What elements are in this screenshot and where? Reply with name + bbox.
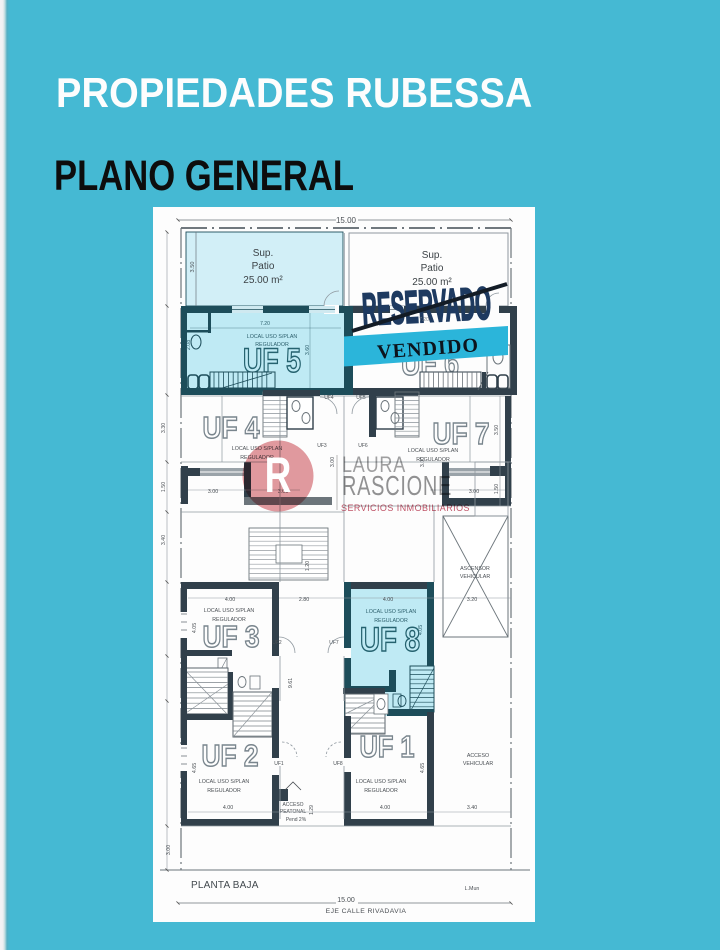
svg-text:RESERVADO: RESERVADO [361,277,493,336]
svg-text:UF 4: UF 4 [203,410,261,445]
svg-text:UF 8: UF 8 [360,621,420,659]
svg-text:Patio: Patio [252,261,275,272]
svg-text:UF1: UF1 [274,761,284,767]
svg-text:4.65: 4.65 [192,763,198,773]
svg-text:UF 2: UF 2 [202,738,259,773]
svg-text:UF2: UF2 [272,640,282,646]
svg-text:3.50: 3.50 [494,425,500,435]
svg-text:4.65: 4.65 [420,763,426,773]
svg-text:1.29: 1.29 [309,805,315,815]
svg-text:UF3: UF3 [317,443,327,449]
svg-text:15.00: 15.00 [337,897,355,904]
svg-text:3.40: 3.40 [467,805,477,811]
svg-text:UF 7: UF 7 [433,416,490,451]
svg-text:25.00 m²: 25.00 m² [243,275,283,286]
svg-text:3.00: 3.00 [208,489,218,495]
svg-text:7.20: 7.20 [419,317,429,323]
svg-text:UF5: UF5 [356,395,366,401]
svg-text:R: R [265,448,292,504]
svg-text:EJE CALLE RIVADAVIA: EJE CALLE RIVADAVIA [326,908,407,915]
svg-text:3.00: 3.00 [469,489,479,495]
svg-text:UF8: UF8 [333,761,343,767]
svg-text:3.00: 3.00 [166,845,172,855]
svg-text:15.00: 15.00 [336,216,357,225]
svg-text:SERVICIOS INMOBILIARIOS: SERVICIOS INMOBILIARIOS [341,503,470,514]
svg-text:Pend 2%: Pend 2% [286,817,307,823]
svg-text:ACCESO: ACCESO [467,753,489,759]
svg-text:LOCAL USO S/PLAN: LOCAL USO S/PLAN [408,448,459,454]
svg-text:PLANTA BAJA: PLANTA BAJA [191,880,259,891]
svg-text:RASCIONE: RASCIONE [342,470,452,501]
svg-text:Sup.: Sup. [253,248,274,259]
svg-text:ACCESO: ACCESO [282,802,303,808]
svg-text:4.05: 4.05 [192,623,198,633]
svg-text:Sup.: Sup. [422,250,443,261]
svg-text:LOCAL USO S/PLAN: LOCAL USO S/PLAN [204,608,255,614]
svg-text:3.60: 3.60 [305,345,311,355]
svg-text:REGULADOR: REGULADOR [364,788,398,794]
svg-text:2.08: 2.08 [186,340,192,350]
svg-text:3.40: 3.40 [161,535,167,545]
svg-text:LOCAL USO S/PLAN: LOCAL USO S/PLAN [247,334,298,340]
svg-text:Patio: Patio [421,263,444,274]
svg-text:1.20: 1.20 [305,561,311,571]
svg-text:1.50: 1.50 [494,484,500,494]
svg-text:LOCAL USO S/PLAN: LOCAL USO S/PLAN [356,779,407,785]
svg-text:7.20: 7.20 [260,321,270,327]
svg-text:4.00: 4.00 [223,805,233,811]
svg-text:LOCAL USO S/PLAN: LOCAL USO S/PLAN [199,779,250,785]
svg-text:L.Mun: L.Mun [465,886,480,892]
svg-text:9.61: 9.61 [288,678,294,688]
svg-text:1.50: 1.50 [161,482,167,492]
svg-text:REGULADOR: REGULADOR [207,788,241,794]
svg-text:3.20: 3.20 [467,597,477,603]
svg-text:4.00: 4.00 [225,597,235,603]
svg-text:LOCAL USO S/PLAN: LOCAL USO S/PLAN [366,609,417,615]
svg-text:ASCENSOR: ASCENSOR [460,566,490,572]
svg-text:VEHICULAR: VEHICULAR [463,761,493,767]
svg-text:3.50: 3.50 [190,262,196,273]
svg-text:4.00: 4.00 [380,805,390,811]
svg-text:3.00: 3.00 [330,457,336,467]
svg-text:3.30: 3.30 [161,423,167,433]
svg-text:2.80: 2.80 [299,597,309,603]
svg-text:4.05: 4.05 [418,625,424,635]
svg-text:4.00: 4.00 [383,597,393,603]
svg-text:UF 1: UF 1 [360,729,415,764]
svg-text:UF 3: UF 3 [203,619,260,654]
svg-text:VEHICULAR: VEHICULAR [460,574,490,580]
svg-text:UF6: UF6 [358,443,368,449]
